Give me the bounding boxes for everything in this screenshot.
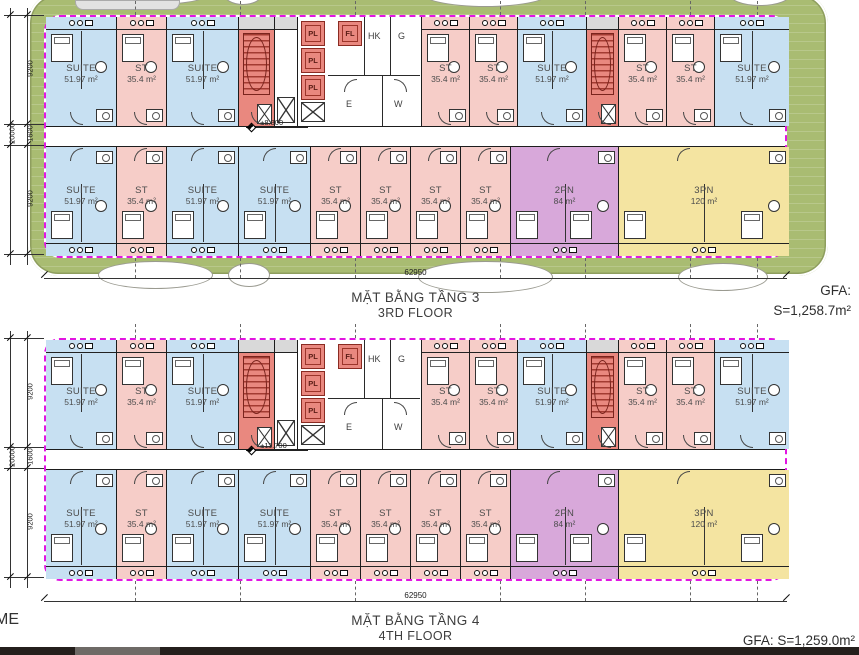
partition-wall (565, 184, 566, 242)
condenser-icon (77, 247, 83, 253)
bed (316, 534, 338, 562)
grid-centerline (135, 581, 136, 601)
balcony (167, 17, 238, 30)
table-icon (339, 523, 351, 535)
balcony (667, 17, 714, 30)
bed (244, 534, 266, 562)
bathroom (390, 151, 407, 164)
grid-centerline (757, 324, 758, 338)
dimension-value: 62950 (44, 268, 787, 277)
partition-wall (552, 354, 553, 412)
unit-suite: SUITE51.97 m² (167, 340, 239, 449)
partition-wall (552, 31, 553, 89)
planter-icon (490, 247, 498, 253)
plan-title-vietnamese: MẶT BẰNG TẦNG 3 (44, 290, 787, 305)
bathroom (96, 432, 113, 445)
washer-icon (540, 343, 546, 349)
unit-st: ST35.4 m² (311, 147, 361, 256)
balcony (117, 566, 166, 579)
dimension-tick (7, 443, 14, 450)
partition-wall (203, 507, 204, 565)
unit-type-label: ST (461, 508, 510, 519)
door-arc (134, 112, 147, 125)
unit-stair (239, 17, 275, 126)
washer-icon (424, 570, 430, 576)
dimension-chain-left: 92001600920020000 (0, 338, 44, 581)
bathroom (390, 474, 407, 487)
dimension-line (10, 331, 11, 588)
planter-icon (440, 247, 448, 253)
door-arc (677, 471, 690, 484)
balcony (619, 340, 666, 353)
grid-centerline (500, 581, 501, 601)
unit-st: ST35.4 m² (422, 17, 470, 126)
dimension-tick-line (4, 447, 44, 448)
balcony (167, 340, 238, 353)
planter-icon (450, 343, 458, 349)
core-wall (328, 398, 420, 399)
table-icon (496, 384, 508, 396)
door-arc (134, 471, 147, 484)
dimension-tick (24, 334, 31, 341)
door-arc (486, 435, 499, 448)
gfa-line-1: GFA: (773, 281, 851, 301)
door-arc (191, 148, 204, 161)
unit-area-label: 35.4 m² (411, 519, 460, 529)
bed (416, 534, 438, 562)
partition-wall (752, 354, 753, 412)
core-room-label: HK (368, 31, 381, 41)
door-arc (740, 435, 753, 448)
dimension-tick (24, 573, 31, 580)
balcony (667, 340, 714, 353)
planter-icon (279, 570, 287, 576)
partition-wall (81, 184, 82, 242)
corridor: +11.700 (46, 449, 785, 470)
unit-label: ST35.4 m² (117, 185, 166, 207)
unit-st: ST35.4 m² (411, 470, 461, 579)
washer-icon (482, 20, 488, 26)
door-arc (394, 402, 407, 415)
bathroom (598, 474, 615, 487)
condenser-icon (77, 20, 83, 26)
unit-st: ST35.4 m² (117, 470, 167, 579)
planter-icon (207, 570, 215, 576)
balcony (46, 566, 116, 579)
core-room-label: G (398, 354, 405, 364)
unit-area-label: 35.4 m² (117, 397, 166, 407)
floor-plan-level-4: SUITE51.97 m²ST35.4 m²SUITE51.97 m²PLPLP… (0, 328, 859, 655)
washer-icon (130, 247, 136, 253)
grid-centerline (585, 581, 586, 601)
bed (51, 534, 73, 562)
washer-icon (191, 570, 197, 576)
unit-suite: SUITE51.97 m² (46, 17, 117, 126)
washer-icon (474, 247, 480, 253)
dimension-tick-line (4, 468, 44, 469)
door-arc (541, 435, 554, 448)
grid-centerline (240, 1, 241, 15)
bathroom (694, 109, 711, 122)
balcony (619, 566, 789, 579)
bed (624, 357, 646, 385)
balcony (361, 243, 410, 256)
grid-centerline (585, 1, 586, 15)
bed (570, 211, 592, 239)
bed (624, 211, 646, 239)
door-arc (263, 471, 276, 484)
bed (244, 211, 266, 239)
unit-type-label: ST (667, 386, 714, 397)
unit-row-south: SUITE51.97 m²ST35.4 m²SUITE51.97 m²SUITE… (46, 147, 785, 256)
dimension-total-value: 20000 (8, 440, 17, 474)
planter-icon (85, 247, 93, 253)
balcony (422, 340, 469, 353)
door-arc (70, 148, 83, 161)
unit-label: ST35.4 m² (422, 386, 469, 408)
floor-edge-hatch (275, 340, 297, 353)
bed (172, 34, 194, 62)
planter-icon (207, 247, 215, 253)
washer-icon (553, 247, 559, 253)
bathroom (96, 151, 113, 164)
unit-label: ST35.4 m² (361, 185, 410, 207)
bed (570, 534, 592, 562)
unit-st: ST35.4 m² (461, 147, 511, 256)
partition-wall (275, 507, 276, 565)
unit-type-label: ST (311, 185, 360, 196)
unit-label: ST35.4 m² (667, 63, 714, 85)
core-wall (364, 17, 365, 75)
washer-icon (740, 343, 746, 349)
grid-centerline (757, 1, 758, 15)
dimension-tick (7, 11, 14, 18)
unit-type-label: ST (619, 386, 666, 397)
unit-label: ST35.4 m² (117, 63, 166, 85)
bathroom (218, 109, 235, 122)
bed (172, 357, 194, 385)
bed (720, 34, 742, 62)
table-icon (217, 384, 229, 396)
unit-area-label: 35.4 m² (411, 196, 460, 206)
unit-label: ST35.4 m² (361, 508, 410, 530)
unit-label: ST35.4 m² (619, 63, 666, 85)
grid-centerline (690, 324, 691, 338)
core-room-label: W (394, 99, 403, 109)
planter-icon (85, 20, 93, 26)
grid-centerline (355, 258, 356, 278)
condenser-icon (199, 570, 205, 576)
condenser-icon (442, 20, 448, 26)
planter-icon (146, 343, 154, 349)
unit-area-label: 35.4 m² (311, 196, 360, 206)
dimension-tick (7, 334, 14, 341)
balcony (619, 17, 666, 30)
core-room-label: G (398, 31, 405, 41)
drawing-sheet: SUITE51.97 m²ST35.4 m²SUITE51.97 m²PLPLP… (0, 0, 859, 655)
dimension-value: 1600 (26, 440, 35, 474)
condenser-icon (382, 247, 388, 253)
unit-stair (239, 340, 275, 449)
partition-wall (565, 507, 566, 565)
door-arc (478, 148, 491, 161)
unit-core: PLPLPLFLHKGEW (298, 340, 422, 449)
unit-area-label: 35.4 m² (117, 196, 166, 206)
bed (51, 357, 73, 385)
bathroom (769, 109, 786, 122)
condenser-icon (639, 20, 645, 26)
balcony (619, 243, 789, 256)
core-wall (382, 75, 383, 126)
condenser-icon (442, 343, 448, 349)
grid-centerline (585, 258, 586, 278)
balcony (715, 340, 789, 353)
partition-wall (752, 31, 753, 89)
grid-centerline (135, 324, 136, 338)
planter-icon (569, 570, 577, 576)
dimension-value: 62950 (44, 591, 787, 600)
condenser-icon (271, 570, 277, 576)
bathroom (449, 109, 466, 122)
dimension-tick (7, 250, 14, 257)
bathroom (146, 109, 163, 122)
bathroom (146, 474, 163, 487)
planter-icon (647, 343, 655, 349)
condenser-icon (490, 343, 496, 349)
table-icon (95, 200, 107, 212)
table-icon (145, 384, 157, 396)
building-outline: SUITE51.97 m²ST35.4 m²SUITE51.97 m²PLPLP… (44, 15, 787, 258)
condenser-icon (700, 247, 706, 253)
table-icon (448, 384, 460, 396)
planter-icon (647, 20, 655, 26)
balcony (511, 243, 618, 256)
door-arc (541, 112, 554, 125)
planter-icon (556, 343, 564, 349)
unit-area-label: 35.4 m² (461, 196, 510, 206)
bed (122, 211, 144, 239)
unit-label: ST35.4 m² (470, 63, 517, 85)
table-icon (289, 200, 301, 212)
bathroom (218, 151, 235, 164)
bathroom (290, 151, 307, 164)
planter-icon (695, 343, 703, 349)
table-icon (145, 200, 157, 212)
dimension-total-value: 20000 (8, 117, 17, 151)
grid-centerline (757, 258, 758, 278)
table-icon (768, 61, 780, 73)
planter-icon (756, 20, 764, 26)
planter-icon (450, 20, 458, 26)
door-arc (438, 112, 451, 125)
bathroom (340, 151, 357, 164)
table-icon (597, 200, 609, 212)
unit-suite: SUITE51.97 m² (239, 147, 311, 256)
table-icon (768, 523, 780, 535)
unit-2pn: 2PN84 m² (511, 147, 619, 256)
building-outline: SUITE51.97 m²ST35.4 m²SUITE51.97 m²PLPLP… (44, 338, 787, 581)
gfa-line-2: S=1,258.7m² (773, 301, 851, 321)
condenser-icon (199, 20, 205, 26)
door-arc (635, 435, 648, 448)
bed (475, 357, 497, 385)
planter-icon (340, 247, 348, 253)
planter-icon (440, 570, 448, 576)
washer-icon (263, 247, 269, 253)
unit-st: ST35.4 m² (311, 470, 361, 579)
fire-lift: FL (338, 344, 362, 369)
condenser-icon (77, 570, 83, 576)
table-icon (768, 200, 780, 212)
unit-suite: SUITE51.97 m² (167, 17, 239, 126)
unit-type-label: ST (117, 386, 166, 397)
unit-type-label: ST (619, 63, 666, 74)
unit-type-label: ST (361, 185, 410, 196)
door-arc (683, 435, 696, 448)
door-arc (428, 471, 441, 484)
bed (741, 534, 763, 562)
grid-centerline (585, 324, 586, 338)
washer-icon (692, 247, 698, 253)
table-icon (439, 523, 451, 535)
condenser-icon (432, 570, 438, 576)
partition-wall (203, 31, 204, 89)
stair-path-oval (594, 360, 611, 414)
unit-type-label: ST (667, 63, 714, 74)
unit-label: ST35.4 m² (461, 185, 510, 207)
table-icon (145, 61, 157, 73)
door-arc (635, 112, 648, 125)
door-arc (191, 435, 204, 448)
table-icon (145, 523, 157, 535)
core-room-label: E (346, 422, 352, 432)
landscape-scallop (223, 0, 263, 5)
condenser-icon (332, 247, 338, 253)
bathroom (218, 474, 235, 487)
unit-type-label: ST (411, 185, 460, 196)
bathroom (598, 151, 615, 164)
unit-suite: SUITE51.97 m² (46, 340, 117, 449)
unit-type-label: ST (117, 185, 166, 196)
core-wall (364, 340, 365, 398)
plan-title-english: 4TH FLOOR (44, 629, 787, 643)
door-arc (70, 112, 83, 125)
bathroom (646, 109, 663, 122)
unit-type-label: ST (422, 386, 469, 397)
bathroom (290, 474, 307, 487)
unit-suite: SUITE51.97 m² (239, 470, 311, 579)
table-icon (289, 523, 301, 535)
unit-type-label: ST (470, 386, 517, 397)
bathroom (440, 474, 457, 487)
dimension-tick-line (4, 338, 44, 339)
condenser-icon (482, 247, 488, 253)
partition-wall (203, 184, 204, 242)
planter-icon (207, 20, 215, 26)
balcony (46, 243, 116, 256)
washer-icon (740, 20, 746, 26)
condenser-icon (700, 570, 706, 576)
door-arc (683, 112, 696, 125)
unit-label: ST35.4 m² (461, 508, 510, 530)
plan-title-vietnamese: MẶT BẰNG TẦNG 4 (44, 613, 787, 628)
core-wall (390, 340, 391, 398)
landscape-scallop (418, 0, 553, 7)
unit-area-label: 35.4 m² (117, 519, 166, 529)
passenger-lift: PL (301, 371, 325, 396)
balcony (518, 340, 586, 353)
bathroom (566, 109, 583, 122)
unit-st: ST35.4 m² (667, 17, 715, 126)
table-icon (217, 200, 229, 212)
bed (720, 357, 742, 385)
door-arc (486, 112, 499, 125)
balcony (311, 566, 360, 579)
unit-area-label: 35.4 m² (361, 196, 410, 206)
core-room-label: HK (368, 354, 381, 364)
door-arc (547, 148, 560, 161)
unit-type-label: ST (311, 508, 360, 519)
grid-centerline (500, 324, 501, 338)
balcony (411, 243, 460, 256)
table-icon (489, 200, 501, 212)
unit-label: ST35.4 m² (411, 508, 460, 530)
condenser-icon (687, 20, 693, 26)
floor-edge-hatch (587, 340, 618, 353)
door-arc (478, 471, 491, 484)
bathroom (218, 432, 235, 445)
unit-area-label: 35.4 m² (470, 74, 517, 84)
washer-icon (130, 570, 136, 576)
unit-st: ST35.4 m² (667, 340, 715, 449)
planter-icon (85, 570, 93, 576)
washer-icon (130, 343, 136, 349)
unit-area-label: 35.4 m² (311, 519, 360, 529)
floor-plan-level-3: SUITE51.97 m²ST35.4 m²SUITE51.97 m²PLPLP… (0, 5, 859, 328)
table-icon (768, 384, 780, 396)
core-room-label: E (346, 99, 352, 109)
stair-path-oval (246, 360, 267, 414)
washer-icon (324, 247, 330, 253)
door-arc (328, 471, 341, 484)
unit-type-label: ST (422, 63, 469, 74)
level-marker: +11.700 (246, 441, 308, 451)
planter-icon (490, 570, 498, 576)
core-wall (328, 75, 420, 76)
washer-icon (191, 343, 197, 349)
table-icon (95, 61, 107, 73)
washer-icon (69, 247, 75, 253)
door-arc (344, 79, 357, 92)
condenser-icon (332, 570, 338, 576)
partition-wall (81, 31, 82, 89)
bathroom (497, 432, 514, 445)
fire-lift: FL (338, 21, 362, 46)
unit-st: ST35.4 m² (470, 17, 518, 126)
bathroom (96, 474, 113, 487)
titleblock-edge-segment (75, 647, 160, 655)
balcony (361, 566, 410, 579)
bathroom (566, 432, 583, 445)
planter-icon (85, 343, 93, 349)
bed (427, 34, 449, 62)
planter-icon (556, 20, 564, 26)
balcony (461, 243, 510, 256)
unit-label: ST35.4 m² (311, 185, 360, 207)
table-icon (448, 61, 460, 73)
condenser-icon (548, 343, 554, 349)
condenser-icon (687, 343, 693, 349)
